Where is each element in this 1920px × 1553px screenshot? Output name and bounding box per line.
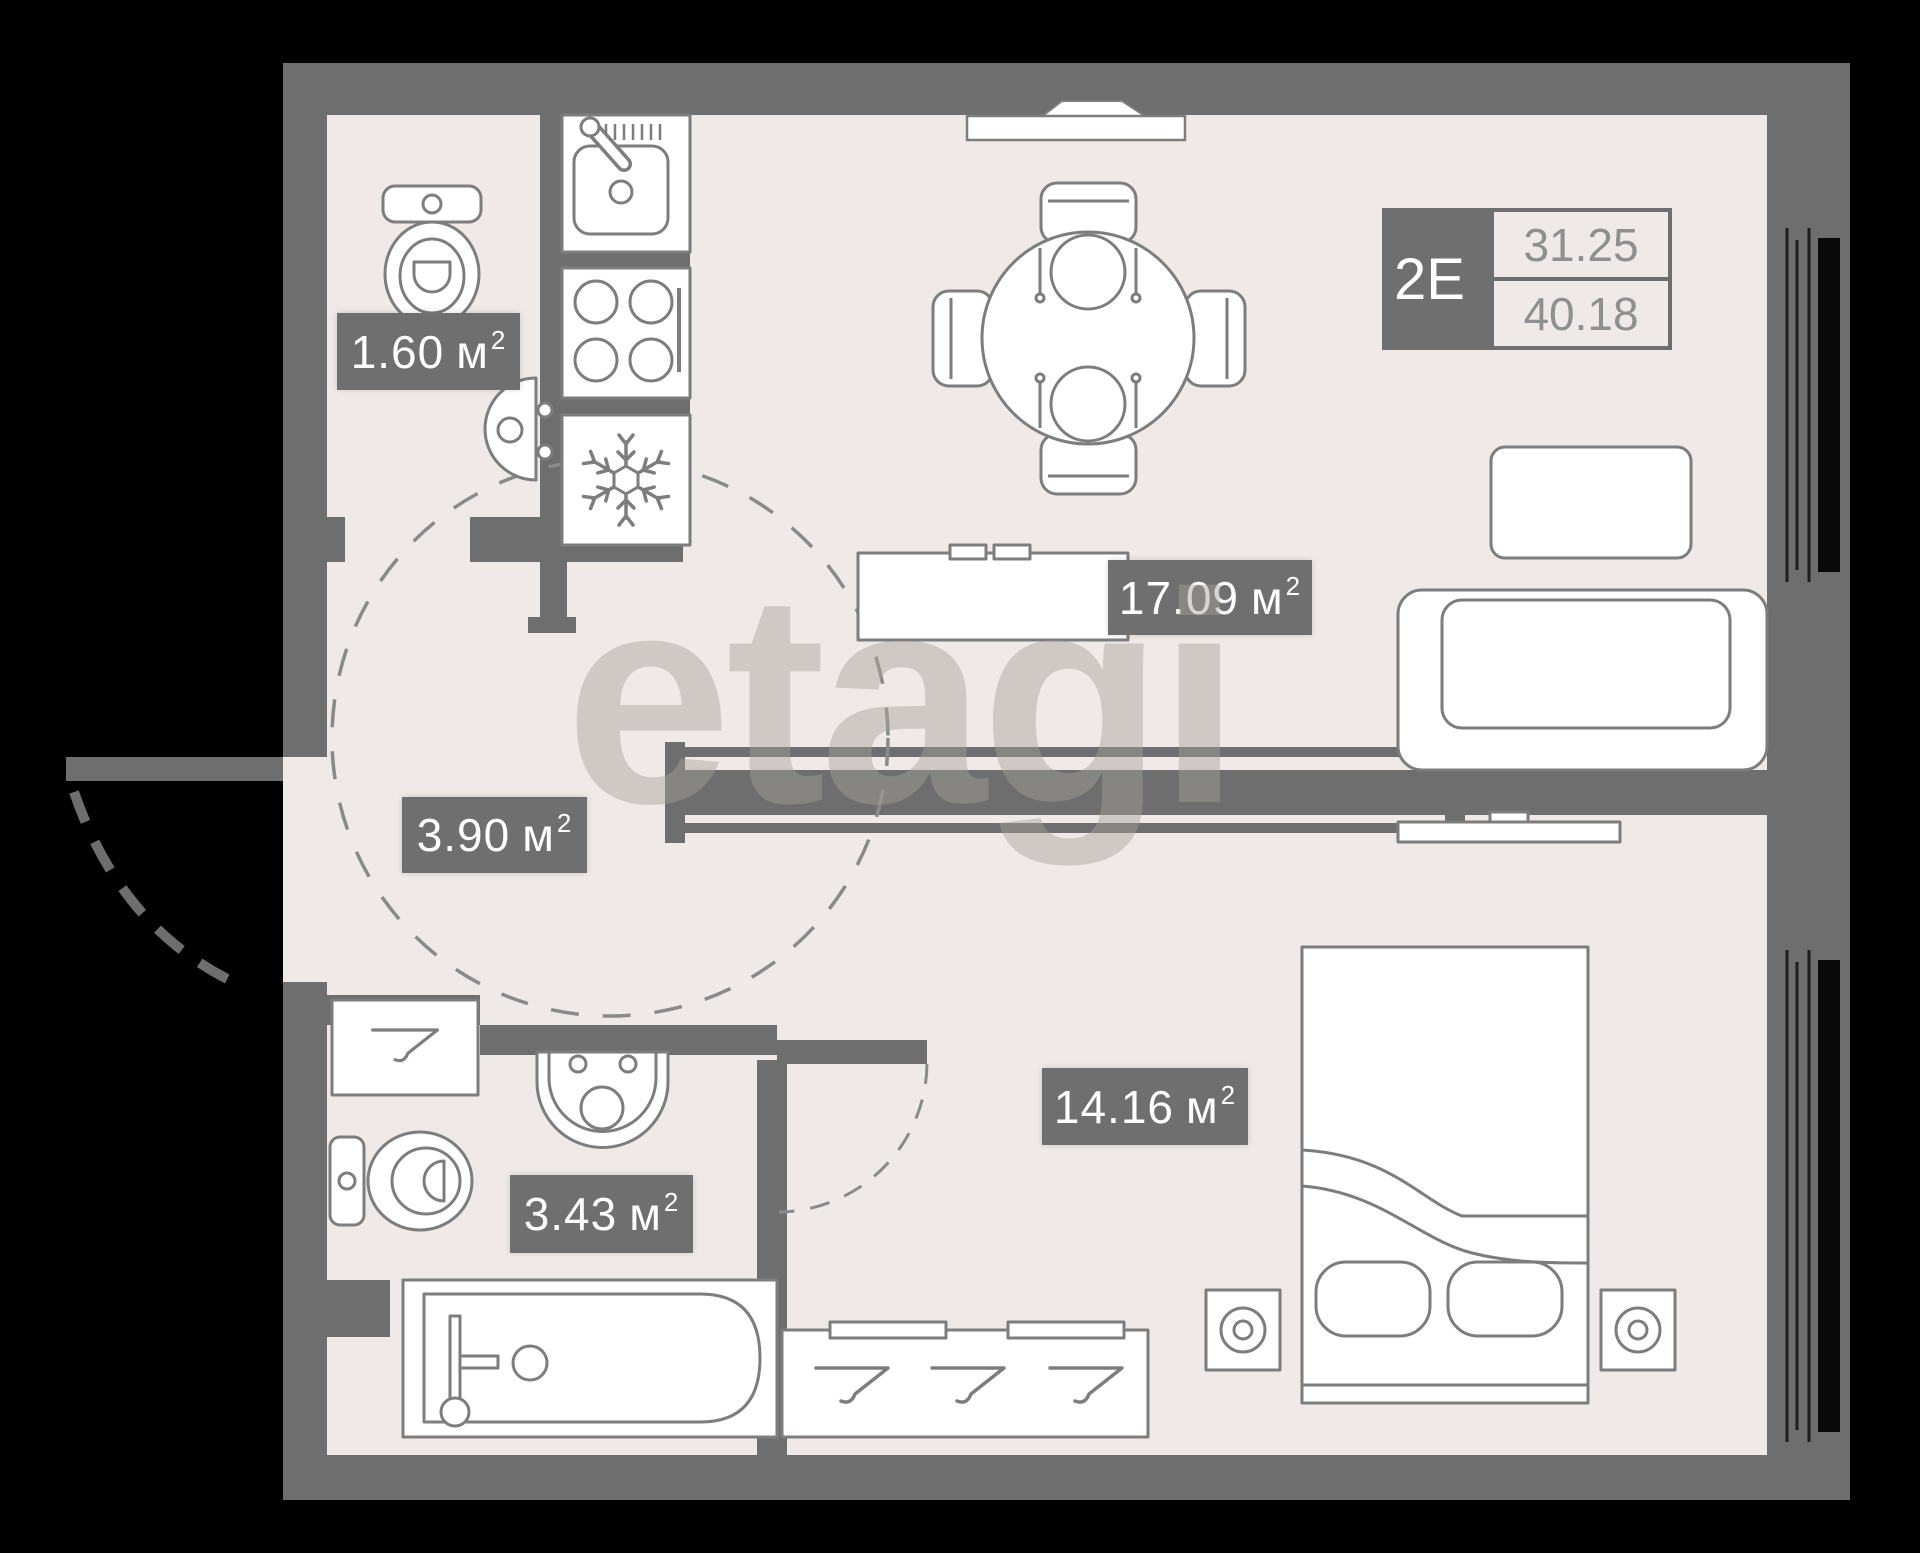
unit-type-code: 2Е [1382, 208, 1490, 350]
sideboard-icon [858, 545, 1128, 640]
toilet-icon [383, 186, 481, 326]
kitchen-sink-icon [562, 115, 690, 252]
sofa-icon [1398, 590, 1767, 770]
bathroom-toilet-icon [330, 1132, 472, 1230]
room-area-label-bathroom: 3.43м2 [510, 1175, 693, 1253]
bathtub-icon [403, 1280, 777, 1437]
area-value: 1.60 [351, 329, 445, 375]
room-area-label-hallway: 3.90м2 [402, 797, 587, 873]
fridge-icon [562, 415, 690, 545]
hall-closet-icon [332, 1000, 478, 1095]
room-area-label-wc: 1.60м2 [337, 313, 520, 390]
floorplan-canvas: 1.60м2 3.90м2 17.09м2 3.43м2 14.16м2 2Е … [0, 0, 1920, 1553]
living-area-value: 31.25 [1490, 208, 1672, 281]
area-sup: 2 [491, 327, 506, 353]
entrance-door-arc [74, 792, 242, 986]
area-value: 14.16 [1054, 1084, 1174, 1130]
drainboard-lines [606, 124, 660, 140]
area-unit: м [1186, 1084, 1219, 1130]
area-value: 3.90 [417, 812, 511, 858]
area-sup: 2 [557, 810, 572, 836]
area-sup: 2 [1286, 573, 1301, 599]
wardrobe-icon [782, 1322, 1148, 1437]
total-area-value: 40.18 [1490, 277, 1672, 350]
area-unit: м [629, 1191, 662, 1237]
area-value: 3.43 [524, 1191, 618, 1237]
stove-icon [562, 268, 690, 398]
room-area-label-kitchen-living: 17.09м2 [1108, 560, 1312, 635]
area-sup: 2 [1221, 1082, 1236, 1108]
bed-icon [1302, 947, 1588, 1403]
coffee-table-icon [1491, 447, 1691, 558]
nightstand-right-icon [1601, 1290, 1675, 1370]
area-unit: м [456, 329, 489, 375]
room-area-label-bedroom: 14.16м2 [1042, 1068, 1248, 1145]
area-unit: м [522, 812, 555, 858]
area-value: 17.09 [1119, 575, 1239, 621]
nightstand-left-icon [1206, 1290, 1280, 1370]
area-unit: м [1251, 575, 1284, 621]
area-sup: 2 [664, 1189, 679, 1215]
unit-info-box: 2Е 31.25 40.18 [1382, 208, 1672, 350]
unit-areas: 31.25 40.18 [1490, 208, 1672, 350]
